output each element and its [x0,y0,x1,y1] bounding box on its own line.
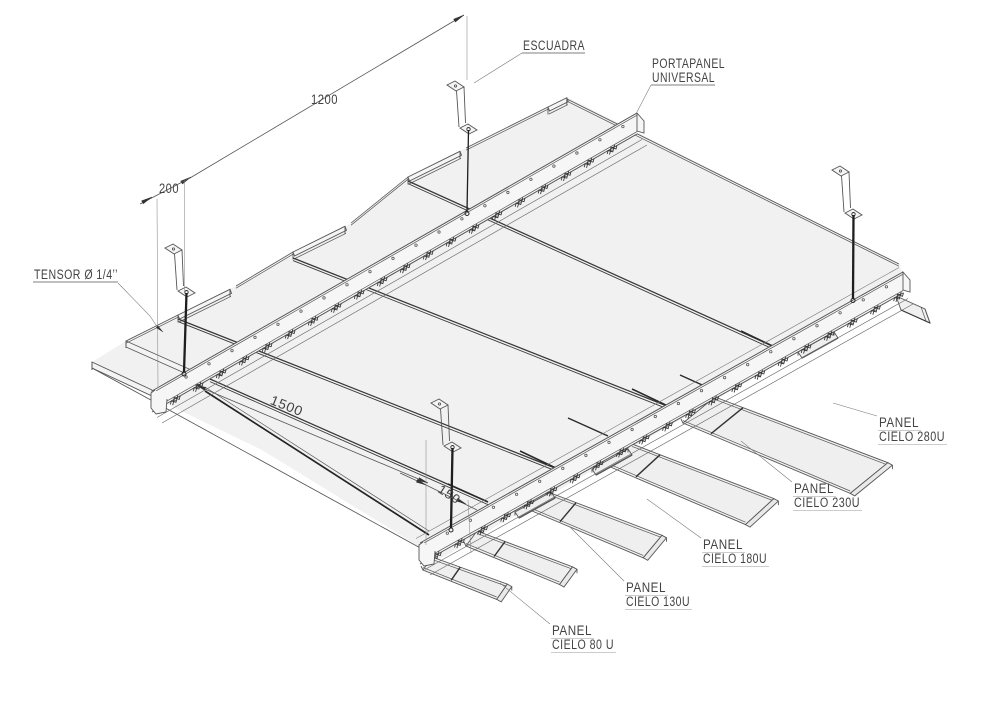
svg-text:CIELO 230U: CIELO 230U [794,495,860,510]
svg-text:PANEL: PANEL [703,537,743,552]
svg-text:ESCUADRA: ESCUADRA [523,38,585,53]
svg-text:PORTAPANEL: PORTAPANEL [652,56,725,71]
svg-text:UNIVERSAL: UNIVERSAL [652,70,715,85]
svg-text:200: 200 [159,181,179,196]
svg-text:PANEL: PANEL [794,481,834,496]
svg-text:PANEL: PANEL [626,580,666,595]
svg-text:CIELO 130U: CIELO 130U [626,594,690,609]
svg-text:PANEL: PANEL [879,415,919,430]
svg-text:CIELO 280U: CIELO 280U [879,429,945,444]
svg-text:1200: 1200 [311,91,338,107]
svg-text:TENSOR Ø 1/4’’: TENSOR Ø 1/4’’ [34,267,118,282]
svg-text:PANEL: PANEL [552,623,592,638]
svg-text:CIELO 180U: CIELO 180U [703,551,767,566]
svg-text:CIELO 80 U: CIELO 80 U [552,637,614,652]
